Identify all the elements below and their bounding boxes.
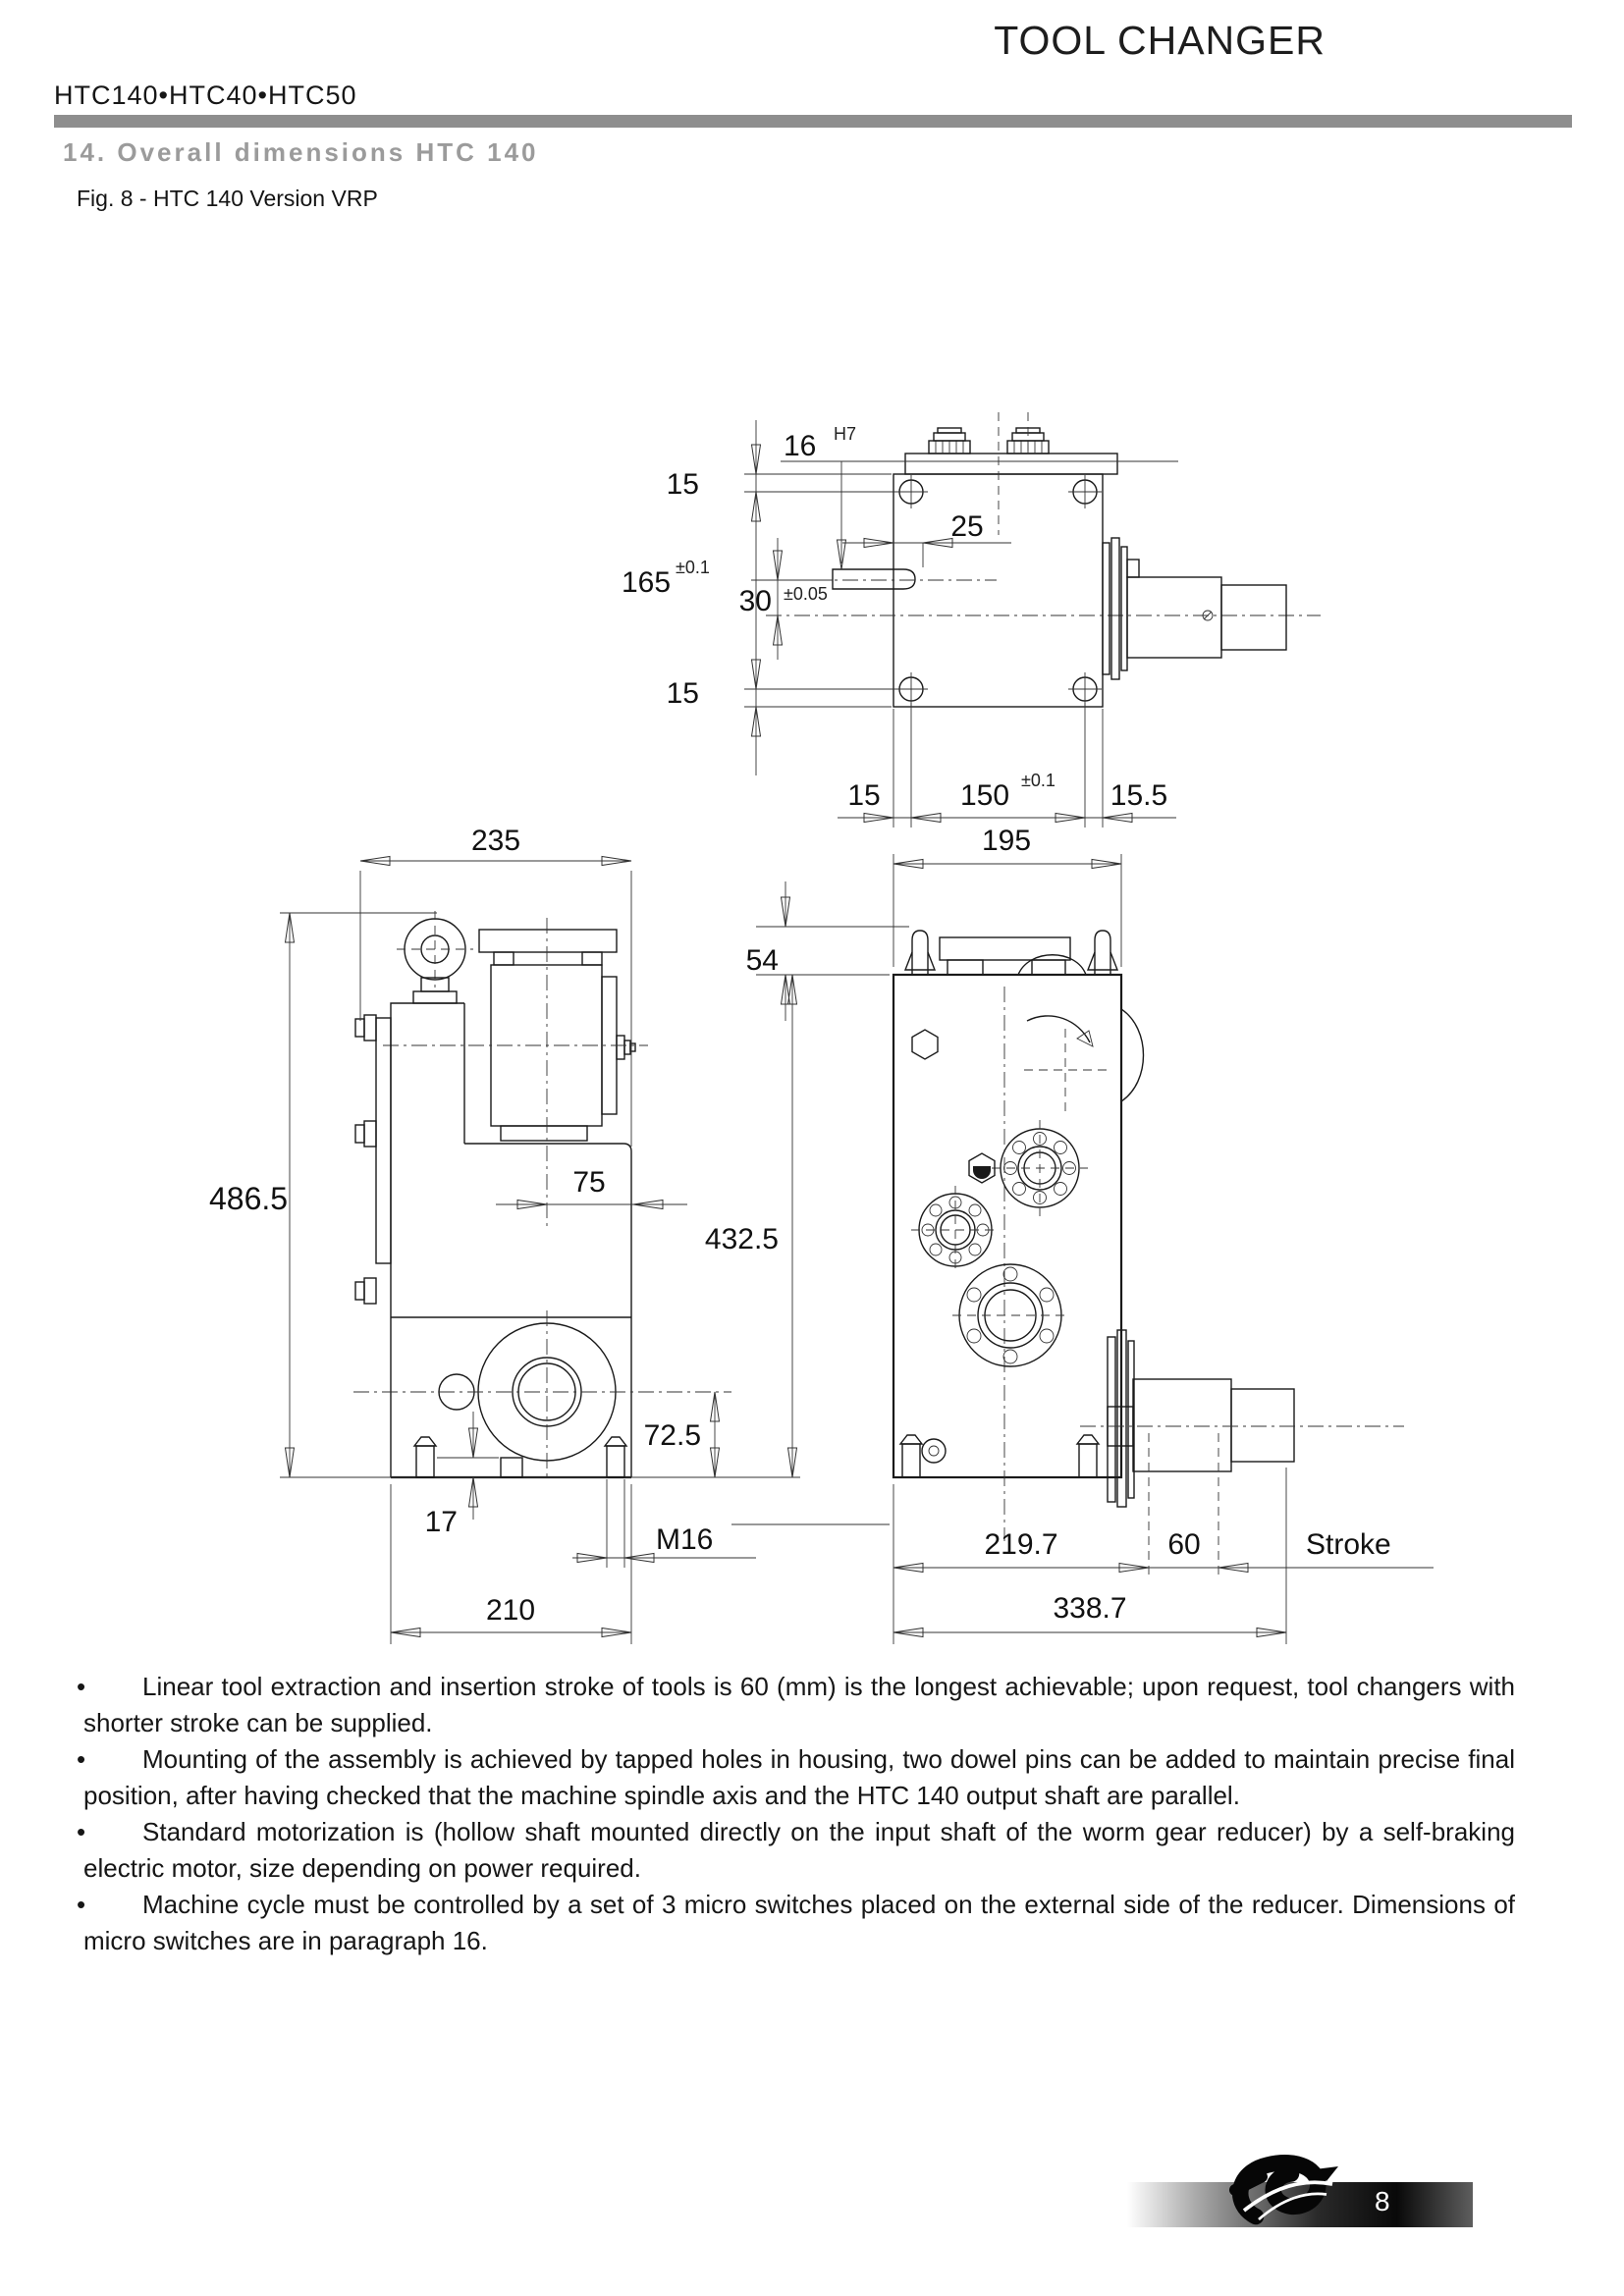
- top-view-holes: [894, 475, 1102, 706]
- dim-16-tol: H7: [834, 424, 856, 444]
- brand-logo-icon: [1223, 2152, 1371, 2234]
- dim-15-top: 15: [667, 468, 699, 501]
- dim-15-base: 15: [847, 779, 880, 812]
- document-page: TOOL CHANGER HTC140•HTC40•HTC50 14. Over…: [0, 0, 1624, 2296]
- dim-72-5: 72.5: [644, 1419, 701, 1452]
- side-view-bolts: [414, 1437, 626, 1477]
- front-view-pins: [905, 931, 1117, 975]
- dim-15-bottom: 15: [667, 677, 699, 710]
- note-item: •Linear tool extraction and insertion st…: [77, 1669, 1515, 1741]
- bullet-icon: •: [77, 1741, 85, 1778]
- dim-16: 16: [784, 430, 816, 462]
- front-view-dimensions: 195 54 432.5: [705, 825, 1434, 1644]
- micro-switch-sensors: [355, 1015, 391, 1304]
- rotation-arrow: [1024, 1016, 1108, 1111]
- dim-486-5: 486.5: [209, 1181, 288, 1216]
- page-number: 8: [1375, 2186, 1390, 2217]
- dim-60: 60: [1167, 1528, 1200, 1561]
- dim-17: 17: [425, 1506, 458, 1538]
- top-view-bolts: [929, 428, 1049, 454]
- dim-150: 150: [960, 779, 1009, 812]
- front-view-bolts: [900, 1435, 1099, 1477]
- dim-338-7: 338.7: [1053, 1592, 1126, 1625]
- dim-54: 54: [746, 944, 779, 977]
- note-text: Mounting of the assembly is achieved by …: [83, 1744, 1515, 1810]
- bullet-icon: •: [77, 1814, 85, 1850]
- dim-150-tol: ±0.1: [1021, 771, 1056, 790]
- dim-165: 165: [622, 566, 671, 599]
- technical-drawing: 16 H7 15 165 ±0.1 15: [0, 0, 1624, 1659]
- top-view-dimensions: 16 H7 15 165 ±0.1 15: [622, 420, 1178, 828]
- stroke-label: Stroke: [1306, 1528, 1391, 1561]
- eye-bolt: [397, 911, 473, 1003]
- flange-lower: [952, 1264, 1068, 1366]
- dim-15-5: 15.5: [1110, 779, 1167, 812]
- note-text: Standard motorization is (hollow shaft m…: [83, 1817, 1515, 1883]
- dim-195: 195: [982, 825, 1031, 857]
- dim-30-tol: ±0.05: [784, 584, 828, 604]
- top-view-drawing: 16 H7 15 165 ±0.1 15: [622, 412, 1321, 828]
- bullet-icon: •: [77, 1669, 85, 1705]
- top-view-output-shaft: [1103, 538, 1286, 679]
- side-bulge: [1121, 1009, 1144, 1101]
- front-view-drawing: 195 54 432.5: [705, 825, 1434, 1644]
- dim-165-tol: ±0.1: [676, 558, 710, 577]
- hex-nut: [969, 1153, 995, 1183]
- output-flange: [353, 1310, 731, 1477]
- note-item: •Machine cycle must be controlled by a s…: [77, 1887, 1515, 1959]
- small-hole: [922, 1439, 946, 1463]
- note-item: •Mounting of the assembly is achieved by…: [77, 1741, 1515, 1814]
- dim-m16: M16: [656, 1523, 713, 1556]
- dim-219-7: 219.7: [984, 1528, 1057, 1561]
- keyway-slot: [833, 569, 915, 589]
- notes-list: •Linear tool extraction and insertion st…: [77, 1669, 1515, 1959]
- dim-210: 210: [486, 1594, 535, 1627]
- dim-30: 30: [739, 585, 772, 617]
- dim-25: 25: [950, 510, 983, 543]
- note-text: Machine cycle must be controlled by a se…: [83, 1890, 1515, 1955]
- flange-middle: [911, 1186, 1000, 1274]
- flange-upper: [992, 1120, 1088, 1216]
- bullet-icon: •: [77, 1887, 85, 1923]
- dim-235: 235: [471, 825, 520, 857]
- hex-plug: [912, 1030, 938, 1059]
- note-text: Linear tool extraction and insertion str…: [83, 1672, 1515, 1737]
- stroke-shaft: [1080, 1330, 1404, 1507]
- motor: [383, 918, 648, 1227]
- dim-75: 75: [572, 1166, 605, 1199]
- side-view-dimensions: 235 486.5 75 72.5: [209, 825, 756, 1644]
- dim-432-5: 432.5: [705, 1223, 779, 1255]
- note-item: •Standard motorization is (hollow shaft …: [77, 1814, 1515, 1887]
